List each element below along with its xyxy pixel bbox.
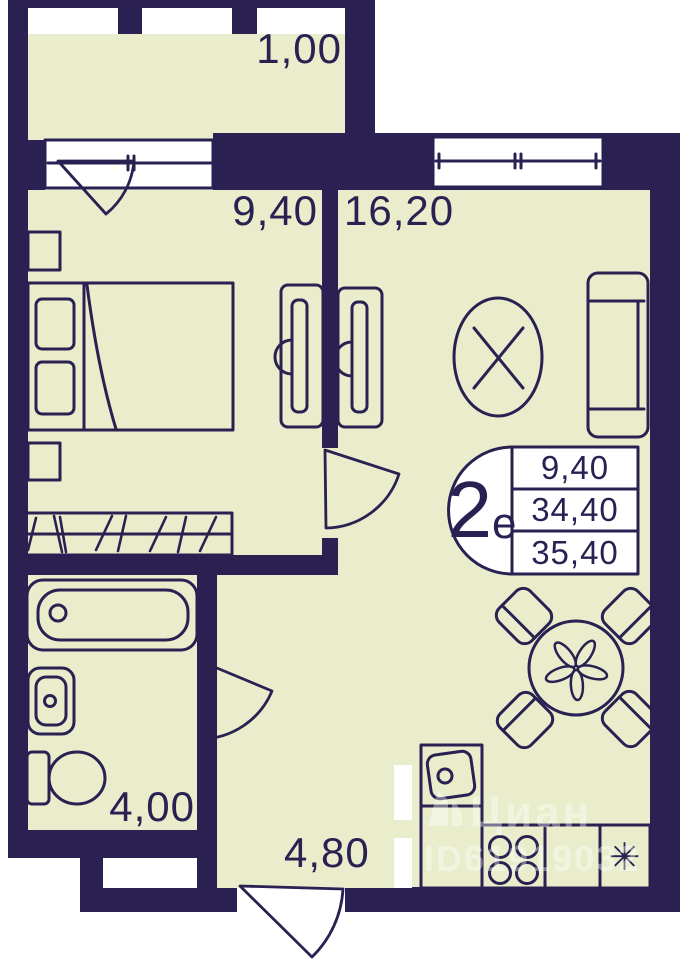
hallway-area-label: 4,80: [284, 832, 370, 874]
bathroom-area-label: 4,00: [85, 786, 195, 828]
apartment-type-number: 2: [428, 470, 492, 550]
bedroom-floor: [28, 190, 322, 555]
living-area-label: 16,20: [344, 190, 454, 232]
watermark-brand: Циан: [470, 788, 592, 838]
balcony-area-label: 1,00: [230, 28, 342, 70]
stamp-living-area: 34,40: [512, 489, 638, 531]
stamp-room-area: 9,40: [512, 447, 638, 489]
living-window: [433, 137, 603, 187]
watermark-id: ID61919032: [424, 838, 640, 880]
dining-table-icon: [529, 621, 623, 715]
floor-plan: 1,00 9,40 16,20 4,00 4,80 2 е 9,40 34,40…: [0, 0, 684, 960]
entrance-door-icon: [240, 886, 343, 957]
bedroom-area-label: 9,40: [206, 190, 318, 232]
stamp-total-area: 35,40: [512, 532, 638, 574]
